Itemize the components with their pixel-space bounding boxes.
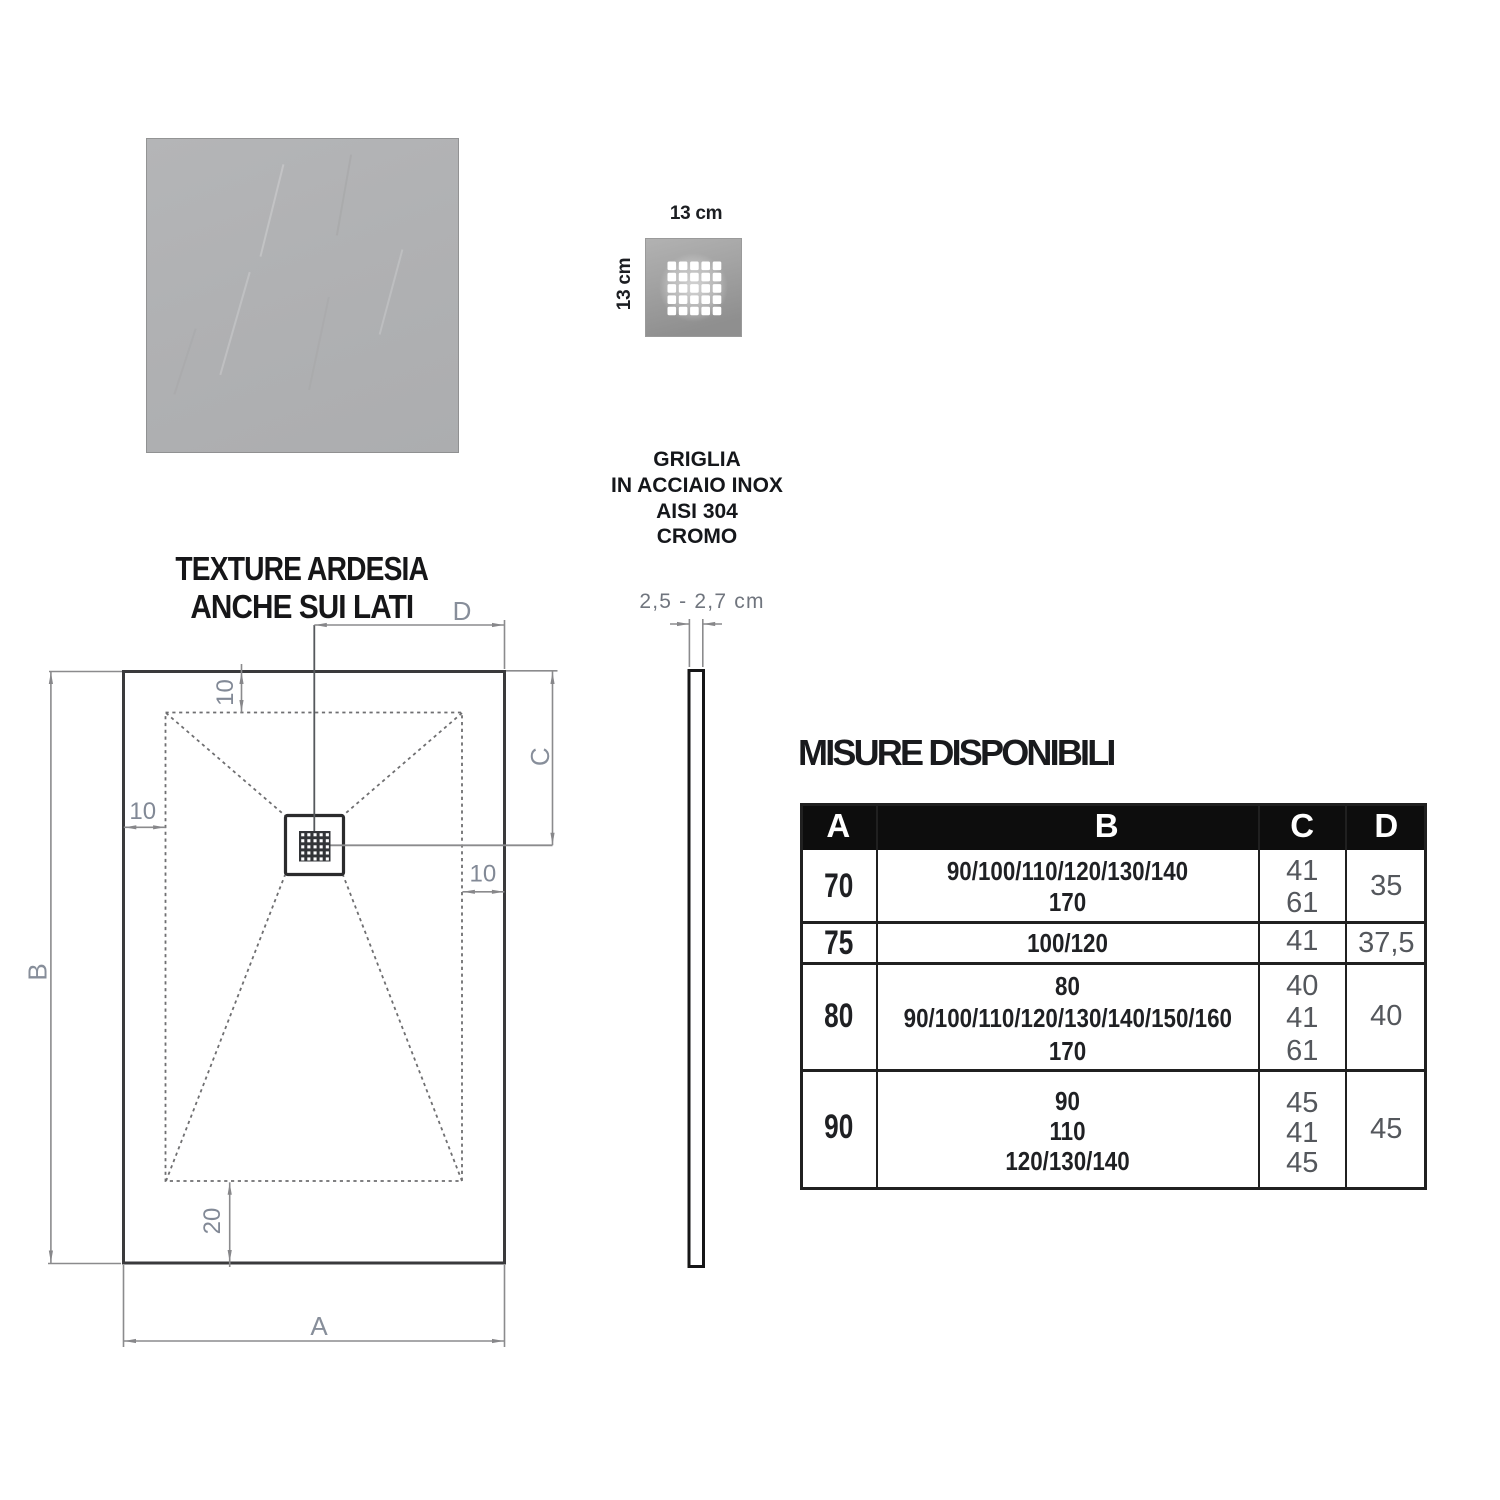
svg-text:10: 10 (129, 798, 156, 825)
svg-text:20: 20 (199, 1208, 226, 1235)
svg-text:10: 10 (470, 861, 497, 888)
svg-text:B: B (23, 963, 53, 980)
svg-text:A: A (310, 1311, 328, 1341)
svg-text:2,5 - 2,7 cm: 2,5 - 2,7 cm (639, 590, 764, 613)
svg-text:C: C (525, 747, 555, 766)
svg-text:D: D (453, 596, 472, 626)
svg-text:10: 10 (212, 679, 239, 706)
